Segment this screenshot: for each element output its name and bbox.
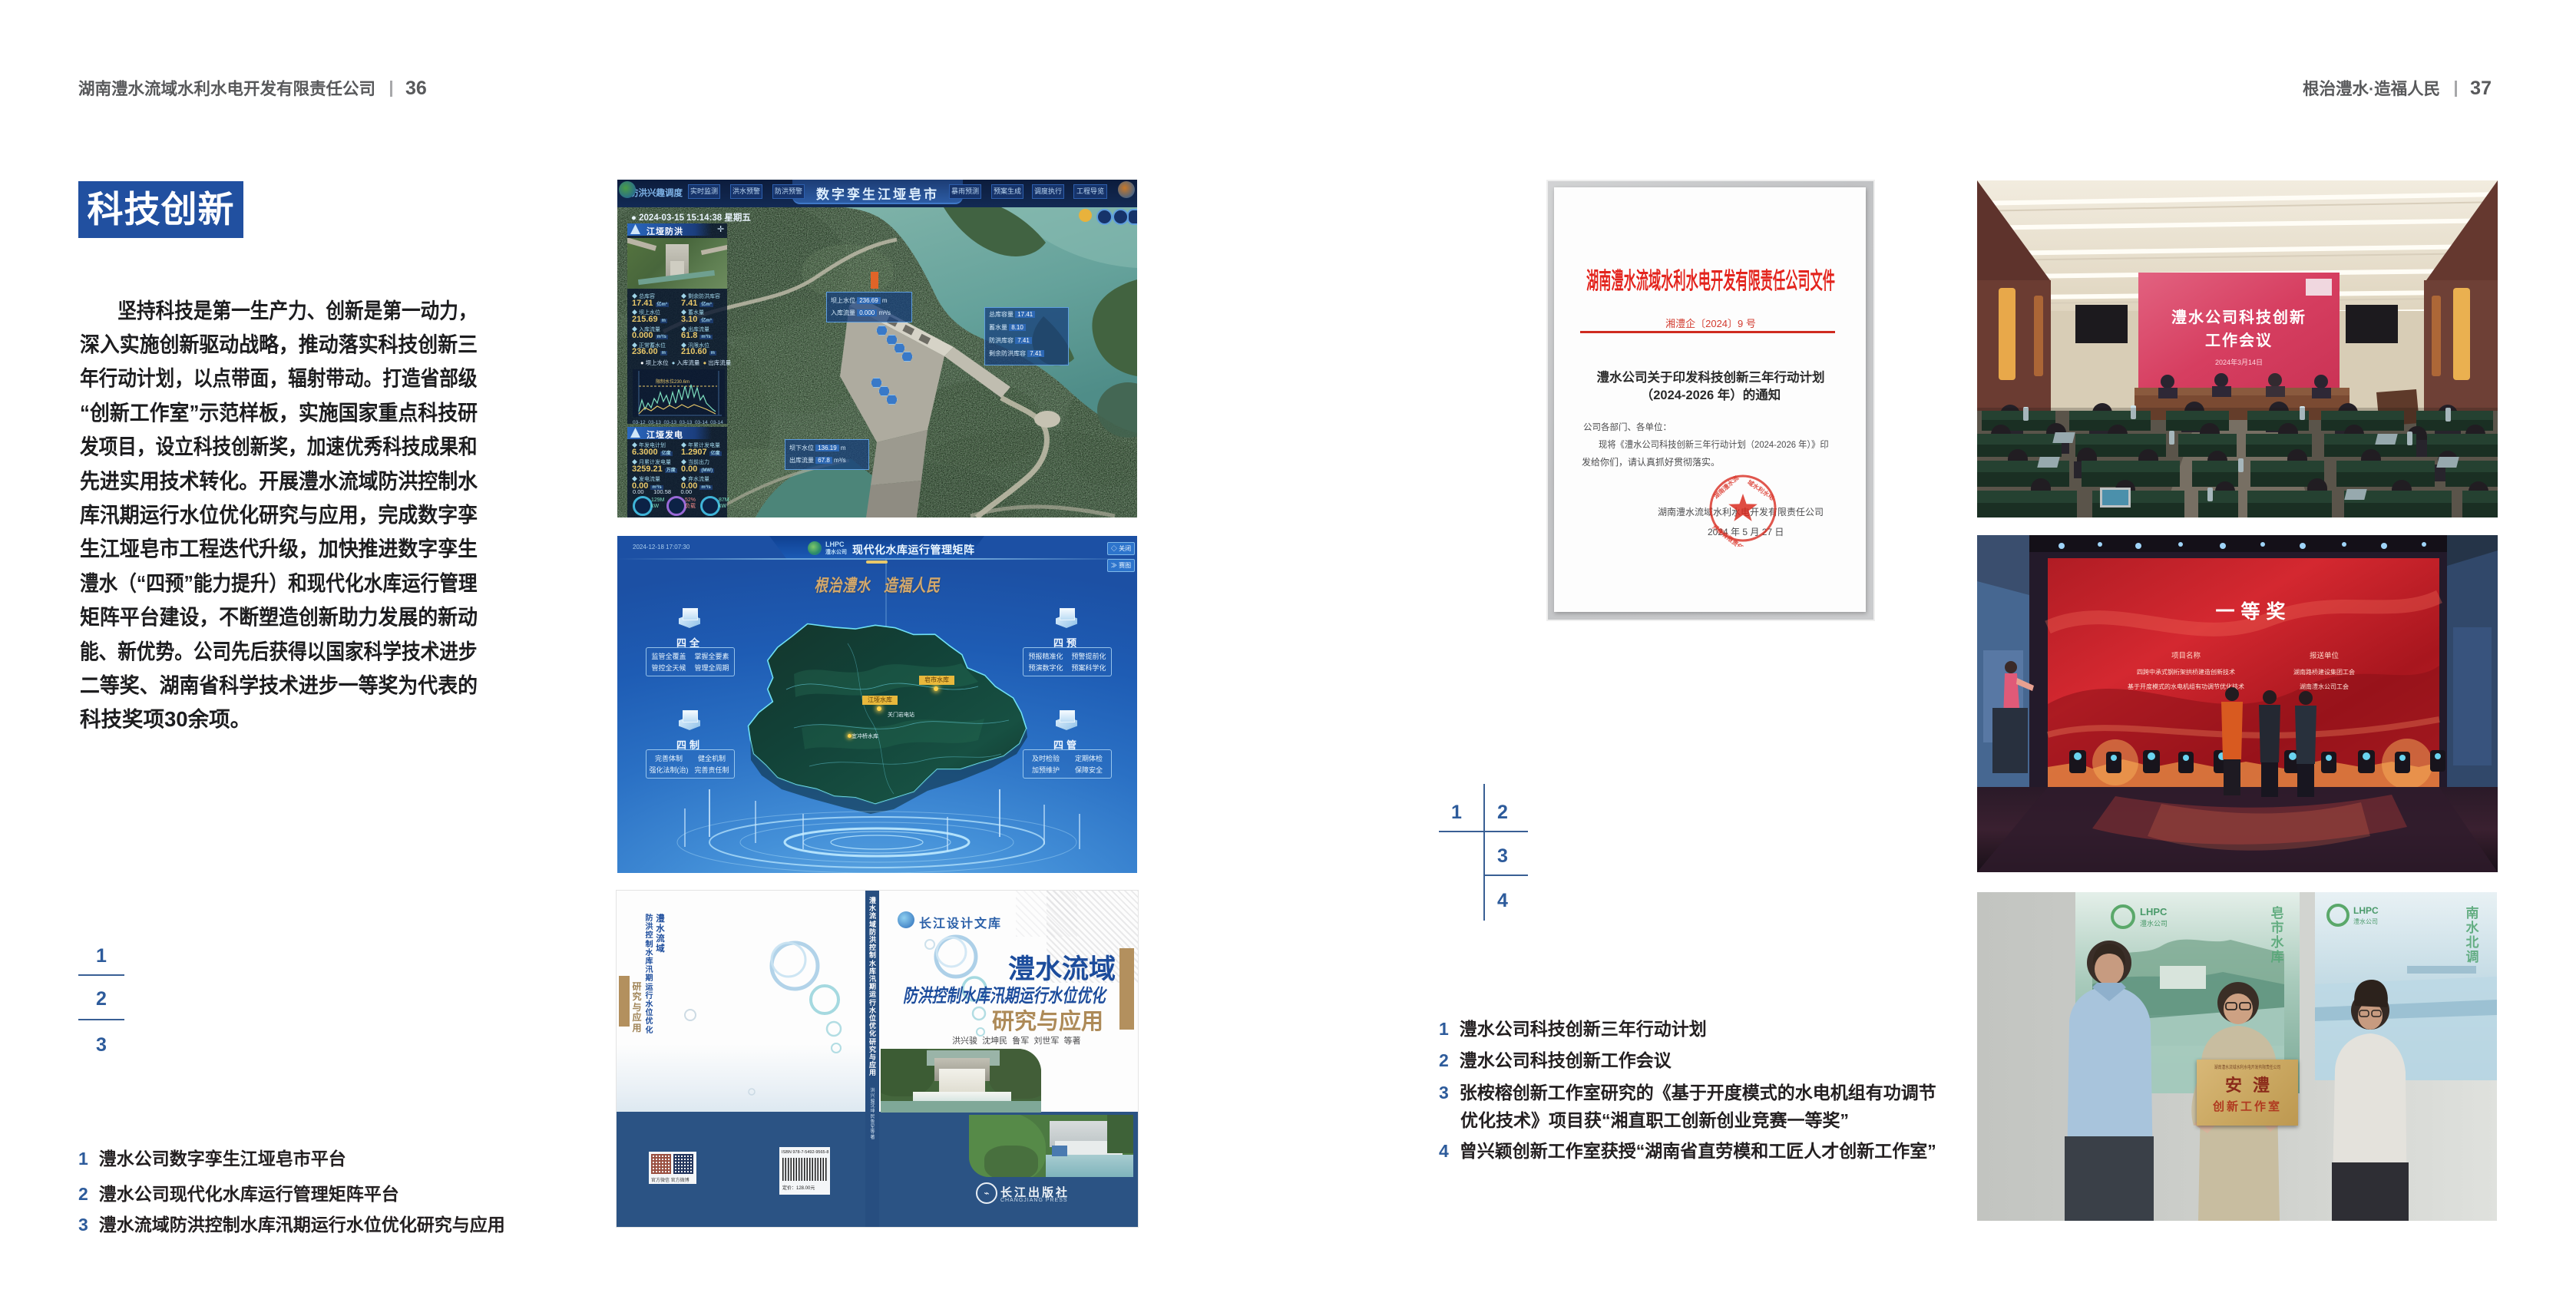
svg-text:工作会议: 工作会议 xyxy=(2205,331,2273,349)
svg-text:报送单位: 报送单位 xyxy=(2310,651,2340,660)
svg-text:2024年3月14日: 2024年3月14日 xyxy=(2215,358,2263,366)
svg-text:一等奖: 一等奖 xyxy=(2215,600,2291,623)
svg-text:LHPC: LHPC xyxy=(2353,905,2379,916)
svg-text:限制水位230.6m: 限制水位230.6m xyxy=(656,379,689,385)
svg-text:基于开度模式的水电机组有功调节优化技术: 基于开度模式的水电机组有功调节优化技术 xyxy=(2128,683,2244,690)
svg-text:湖南澧水公司工会: 湖南澧水公司工会 xyxy=(2300,683,2349,690)
svg-text:湖南路桥建设集团工会: 湖南路桥建设集团工会 xyxy=(2293,668,2355,676)
svg-text:开发有限责任公司: 开发有限责任公司 xyxy=(1711,523,1754,547)
svg-text:澧水公司: 澧水公司 xyxy=(2140,919,2168,927)
svg-text:湖南澧水流: 湖南澧水流 xyxy=(1712,474,1740,500)
svg-text:澧水公司: 澧水公司 xyxy=(2353,918,2378,925)
svg-text:四跨中承式钢桁架拱桥建造创新技术: 四跨中承式钢桁架拱桥建造创新技术 xyxy=(2137,668,2235,676)
svg-text:澧水公司科技创新: 澧水公司科技创新 xyxy=(2171,308,2306,326)
svg-text:项目名称: 项目名称 xyxy=(2171,651,2201,660)
svg-text:LHPC: LHPC xyxy=(2140,906,2168,918)
